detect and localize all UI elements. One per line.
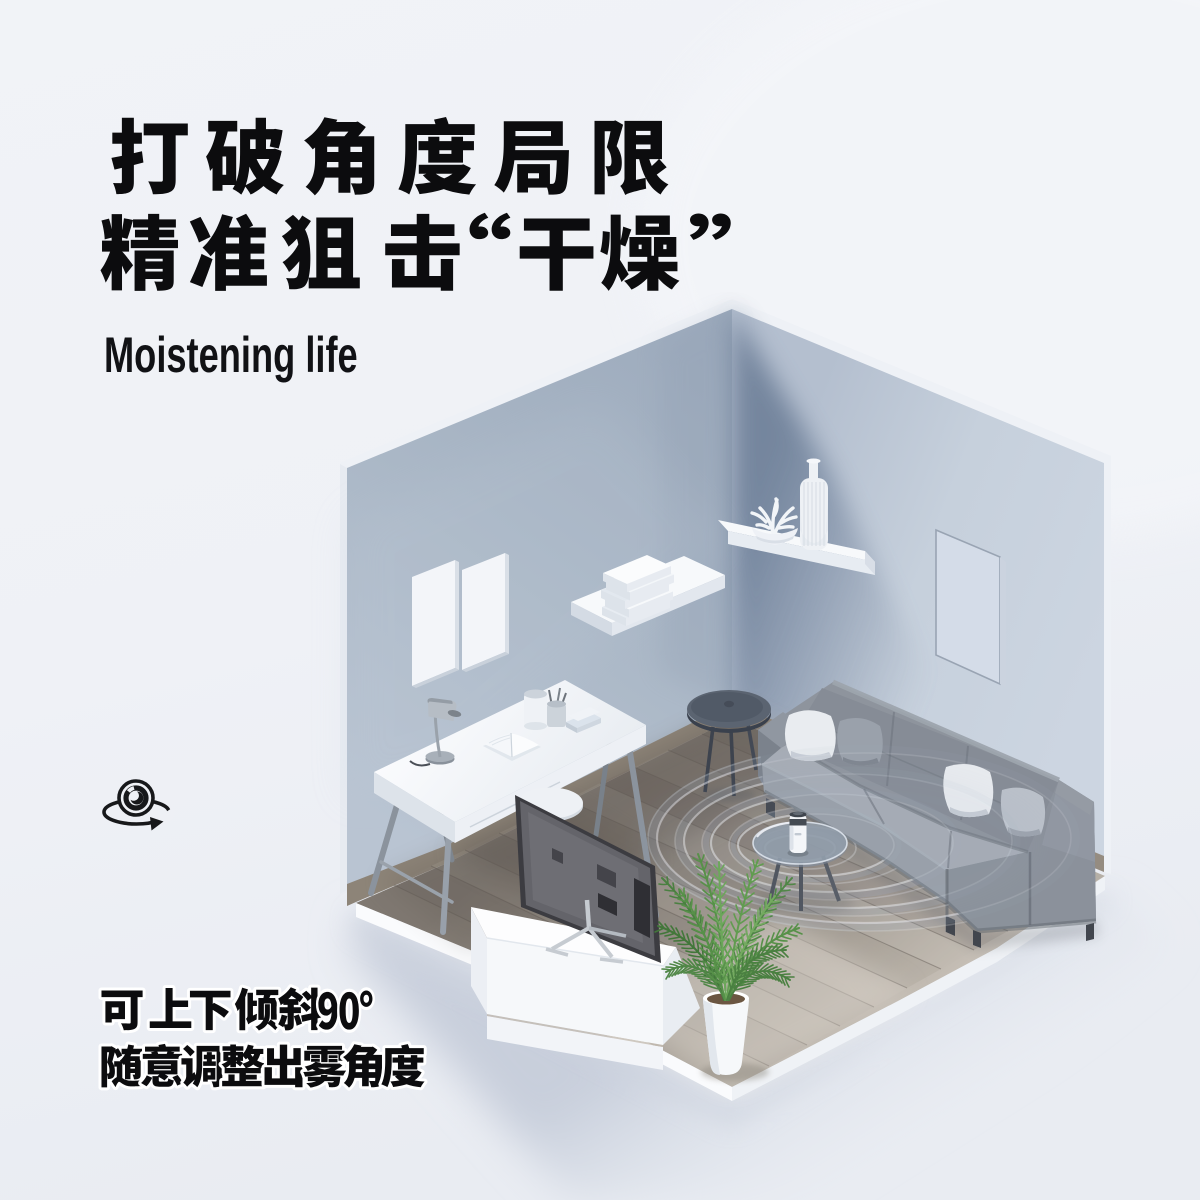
svg-text:Moistening life: Moistening life (104, 327, 358, 383)
